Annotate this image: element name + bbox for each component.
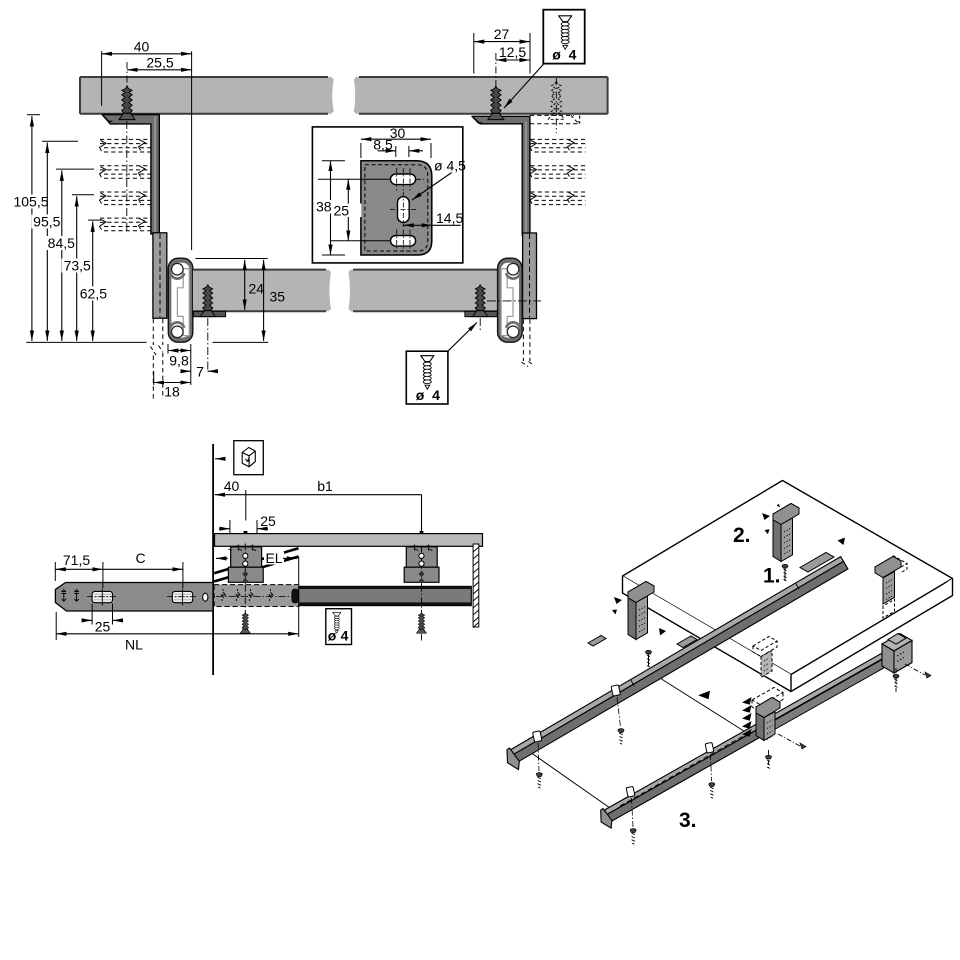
svg-text:NL: NL	[125, 637, 143, 653]
svg-text:40: 40	[134, 38, 150, 54]
svg-text:84,5: 84,5	[48, 235, 75, 251]
svg-text:1.: 1.	[763, 565, 781, 588]
svg-text:9,8: 9,8	[169, 352, 189, 368]
svg-text:4: 4	[432, 387, 440, 403]
svg-text:105,5: 105,5	[13, 193, 48, 209]
svg-text:25,5: 25,5	[146, 54, 173, 70]
svg-text:4: 4	[569, 47, 577, 63]
svg-text:14,5: 14,5	[436, 210, 463, 226]
svg-text:27: 27	[494, 26, 510, 42]
svg-text:EL: EL	[265, 550, 282, 566]
svg-text:C: C	[136, 550, 146, 566]
svg-text:40: 40	[224, 478, 240, 494]
svg-text:3.: 3.	[679, 809, 697, 832]
svg-text:ø: ø	[552, 47, 561, 63]
svg-text:73,5: 73,5	[64, 257, 91, 273]
svg-text:7: 7	[196, 363, 204, 379]
svg-text:8,5: 8,5	[373, 136, 393, 152]
svg-text:25: 25	[260, 513, 276, 529]
svg-text:4: 4	[341, 627, 349, 643]
svg-text:24: 24	[249, 281, 265, 297]
svg-text:b1: b1	[317, 478, 333, 494]
svg-text:ø: ø	[328, 627, 337, 643]
svg-text:38: 38	[316, 199, 332, 215]
svg-text:ø 4,5: ø 4,5	[434, 158, 466, 174]
svg-text:62,5: 62,5	[80, 285, 107, 301]
svg-text:25: 25	[334, 203, 350, 219]
svg-text:12,5: 12,5	[499, 44, 526, 60]
svg-text:71,5: 71,5	[63, 552, 90, 568]
svg-text:35: 35	[270, 289, 286, 305]
svg-text:2.: 2.	[733, 524, 751, 547]
svg-text:18: 18	[164, 384, 180, 400]
svg-text:ø: ø	[416, 387, 425, 403]
svg-text:95,5: 95,5	[33, 213, 60, 229]
svg-text:25: 25	[95, 619, 111, 635]
